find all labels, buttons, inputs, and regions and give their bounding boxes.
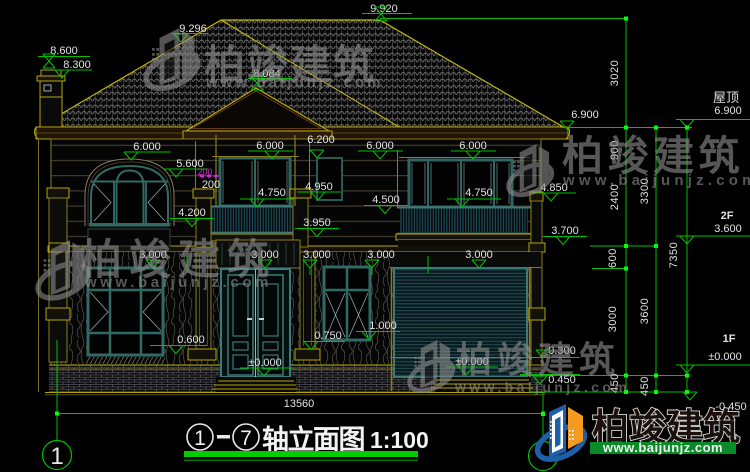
- svg-text:3.700: 3.700: [551, 225, 579, 237]
- svg-text:±0.000: ±0.000: [248, 357, 282, 369]
- svg-text:3.000: 3.000: [303, 249, 331, 261]
- svg-text:3.950: 3.950: [303, 217, 331, 229]
- svg-text:4.750: 4.750: [465, 187, 493, 199]
- svg-text:1: 1: [50, 443, 63, 470]
- svg-text:3.000: 3.000: [465, 249, 493, 261]
- svg-text:www.baijunjz.com: www.baijunjz.com: [562, 172, 750, 189]
- svg-text:450: 450: [639, 376, 651, 396]
- svg-text:3.600: 3.600: [714, 223, 742, 235]
- svg-text:0.750: 0.750: [314, 330, 342, 342]
- svg-text:3000: 3000: [607, 306, 619, 332]
- svg-text:www.baijunjz.com: www.baijunjz.com: [84, 274, 272, 291]
- svg-text:6.000: 6.000: [366, 140, 394, 152]
- svg-text:柏竣建筑: 柏竣建筑: [456, 339, 620, 380]
- svg-text:1: 1: [194, 427, 206, 450]
- svg-text:200: 200: [202, 179, 220, 191]
- svg-text:±0.000: ±0.000: [708, 351, 742, 363]
- svg-text:屋顶: 屋顶: [713, 90, 739, 105]
- svg-text:13560: 13560: [284, 398, 315, 410]
- svg-text:4.200: 4.200: [178, 207, 206, 219]
- svg-text:1:100: 1:100: [370, 427, 429, 453]
- svg-text:6.900: 6.900: [571, 109, 599, 121]
- svg-text:2F: 2F: [721, 210, 734, 222]
- svg-text:4.950: 4.950: [305, 181, 333, 193]
- svg-text:www.baijunjz.com: www.baijunjz.com: [602, 440, 723, 455]
- svg-text:6.000: 6.000: [133, 141, 161, 153]
- svg-text:600: 600: [607, 248, 619, 268]
- svg-text:6.000: 6.000: [459, 140, 487, 152]
- svg-text:0.600: 0.600: [177, 334, 205, 346]
- svg-text:4.500: 4.500: [372, 194, 400, 206]
- svg-text:4.750: 4.750: [258, 187, 286, 199]
- svg-text:6.200: 6.200: [307, 134, 335, 146]
- svg-text:6.000: 6.000: [256, 140, 284, 152]
- svg-text:1F: 1F: [723, 333, 736, 345]
- svg-text:3600: 3600: [639, 298, 651, 324]
- svg-text:轴立面图: 轴立面图: [262, 424, 364, 455]
- svg-text:1.000: 1.000: [369, 320, 397, 332]
- svg-text:3020: 3020: [609, 60, 621, 86]
- svg-text:3.000: 3.000: [367, 249, 395, 261]
- svg-text:7: 7: [240, 427, 252, 450]
- svg-text:6.900: 6.900: [714, 105, 742, 117]
- svg-text:8.300: 8.300: [63, 59, 91, 71]
- svg-text:www.baijunjz.com: www.baijunjz.com: [205, 74, 383, 91]
- svg-text:7350: 7350: [668, 242, 680, 268]
- svg-text:www.baijunjz.com: www.baijunjz.com: [454, 379, 630, 395]
